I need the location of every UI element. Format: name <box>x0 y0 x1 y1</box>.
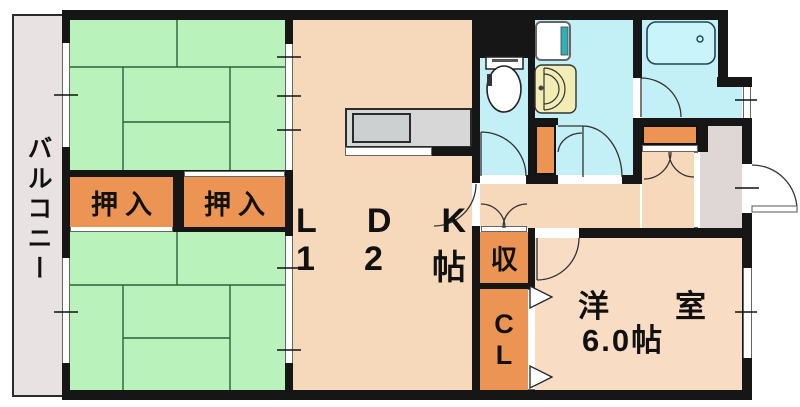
wall-toilet-right <box>528 10 535 184</box>
shoe-cabinet <box>642 125 698 145</box>
sliding-door-tatami-upper <box>285 44 293 170</box>
western-char-2: 室 <box>675 281 706 326</box>
wall-step <box>717 77 752 87</box>
doorway-ldk <box>472 183 480 226</box>
tatami-room-upper <box>70 20 285 170</box>
wall-linen-top <box>528 118 558 125</box>
oshiire-right-label: 押入 <box>197 183 272 222</box>
wall-bottom <box>62 390 752 400</box>
wall-top <box>62 10 728 20</box>
entrance-hall <box>642 152 694 228</box>
corridor <box>480 184 640 228</box>
oshiire-left: 押入 <box>70 177 173 227</box>
ldk-char-k: K <box>441 202 466 241</box>
kitchen-counter-stub <box>432 147 472 156</box>
ldk-char-d: D <box>367 202 392 241</box>
kitchen-sink <box>352 113 411 143</box>
doorway-washroom <box>558 175 622 184</box>
cl-label-l: L <box>496 340 513 371</box>
bathroom-nook <box>718 87 742 118</box>
pipe-shaft <box>472 10 535 58</box>
sliding-door-tatami-lower <box>285 236 293 363</box>
wall-storage-right <box>528 228 535 290</box>
doorway-western <box>535 228 579 238</box>
wall-bath-right <box>718 10 728 79</box>
bathroom <box>642 20 718 118</box>
entrance-step <box>694 152 698 228</box>
balcony-label: バルコニー <box>20 135 56 285</box>
ldk-size-label: 1 2 帖 <box>296 240 466 289</box>
ldk-size-1: 1 <box>296 240 315 289</box>
ldk-char-l: L <box>296 202 317 241</box>
tatami-room-lower <box>70 232 285 390</box>
storage-label: 収 <box>491 238 518 277</box>
ldk-size-2: 2 <box>364 240 383 289</box>
balcony-label-wrap: バルコニー <box>12 100 64 320</box>
ldk-label: L D K <box>296 202 466 241</box>
cl-label-c: C <box>494 309 514 340</box>
shoe-cabinet-door-front <box>642 145 698 152</box>
ldk-size-jo: 帖 <box>432 240 466 289</box>
doorway-entrance <box>742 164 752 213</box>
cl-box: C L <box>480 289 528 390</box>
doorway-bath <box>633 78 642 118</box>
doorway-toilet <box>480 175 526 184</box>
floor-plan: 押入 押入 収 C L <box>0 0 800 407</box>
linen-cabinet <box>535 125 556 175</box>
wall-entrance-stub <box>698 125 708 152</box>
entrance-door-arc <box>752 165 797 210</box>
entrance-door-leaf <box>752 206 797 212</box>
window-bath-nook <box>743 87 751 118</box>
western-room-size: 6.0帖 <box>582 315 664 360</box>
oshiire-right: 押入 <box>184 177 285 227</box>
kitchen-counter-front <box>345 147 432 156</box>
storage-box: 収 <box>480 232 528 283</box>
oshiire-left-label: 押入 <box>84 183 159 222</box>
window-western <box>743 268 752 358</box>
cl-door-front <box>528 289 535 390</box>
toilet-room <box>480 58 528 175</box>
